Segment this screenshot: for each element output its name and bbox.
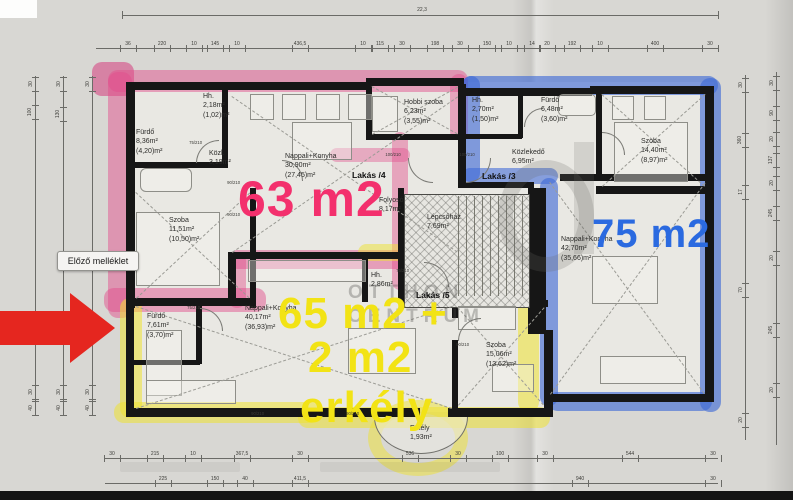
vertical-dimension-tick: [60, 385, 67, 386]
top-dimension-tick: [539, 45, 540, 52]
red-arrow-annotation: [0, 311, 70, 345]
vertical-dimension: 100: [27, 108, 33, 116]
vertical-dimension: 30: [28, 81, 34, 87]
vertical-dimension-line: [35, 76, 36, 416]
door-size-label: 90/210: [251, 411, 264, 416]
room-label: Fürdő 7,61m² (3,70)m²: [147, 312, 173, 340]
bottom-dimension: 100: [496, 451, 504, 457]
vertical-dimension-tick: [32, 91, 39, 92]
vertical-dimension: 360: [737, 136, 743, 144]
bottom-dimension-tick: [553, 455, 554, 462]
vertical-dimension-tick: [773, 383, 780, 384]
vertical-dimension: 245: [768, 326, 774, 334]
vertical-dimension-tick: [773, 153, 780, 154]
area-label: erkély: [300, 386, 433, 430]
bottom-dimension-tick: [492, 455, 493, 462]
vertical-dimension-tick: [773, 146, 780, 147]
vertical-dimension: 245: [768, 209, 774, 217]
vertical-dimension: 20: [769, 387, 775, 393]
vertical-dimension-tick: [773, 206, 780, 207]
vertical-dimension-tick: [60, 399, 67, 400]
vertical-dimension-tick: [773, 397, 780, 398]
vertical-dimension: 137: [768, 156, 774, 164]
vertical-dimension-tick: [773, 323, 780, 324]
bottom-dimension: 940: [576, 476, 584, 482]
top-dimension-tick: [564, 45, 565, 52]
bottom-dimension: 40: [242, 476, 248, 482]
vertical-dimension-tick: [773, 90, 780, 91]
top-dimension-tick: [308, 45, 309, 52]
top-dimension-tick: [580, 45, 581, 52]
door-size-label: 75/210: [396, 268, 409, 273]
vertical-dimension-tick: [32, 105, 39, 106]
top-dimension-tick: [495, 45, 496, 52]
bottom-dimension-tick: [705, 455, 706, 462]
top-dimension-tick: [394, 45, 395, 52]
bottom-dimension-tick: [705, 480, 706, 487]
area-label: 2 m2: [308, 336, 412, 380]
top-dimension-tick: [207, 45, 208, 52]
top-dimension-tick: [202, 45, 203, 52]
bottom-dimension: 30: [455, 451, 461, 457]
vertical-dimension: 30: [85, 389, 91, 395]
vertical-dimension-tick: [89, 77, 96, 78]
bottom-dimension: 30: [542, 451, 548, 457]
bottom-dimension: 30: [297, 451, 303, 457]
top-dimension: 10: [360, 41, 366, 47]
vertical-dimension-tick: [773, 190, 780, 191]
vertical-dimension-tick: [742, 185, 749, 186]
vertical-dimension-tick: [742, 133, 749, 134]
previous-attachment-button[interactable]: Előző melléklet: [57, 251, 139, 271]
top-dimension: 150: [483, 41, 491, 47]
top-dimension: 30: [707, 41, 713, 47]
top-dimension-tick: [136, 45, 137, 52]
bottom-dimension: 30: [109, 451, 115, 457]
bottom-dimension-tick: [638, 455, 639, 462]
bottom-dimension-tick: [185, 455, 186, 462]
vertical-dimension: 40: [85, 405, 91, 411]
vertical-dimension: 30: [28, 389, 34, 395]
vertical-dimension-tick: [60, 401, 67, 402]
room-label: Fürdő 6,48m² (3,60)m²: [541, 96, 567, 124]
bottom-dimension-tick: [622, 455, 623, 462]
red-arrow-annotation-head: [70, 293, 115, 363]
vertical-dimension-tick: [773, 106, 780, 107]
floor-plan-photo: OTTHON CENTRUM Hh. 2,18m² (1,02)m²Fürdő …: [0, 0, 793, 500]
door-size-label: 90/210: [227, 180, 240, 185]
vertical-dimension-tick: [32, 399, 39, 400]
top-dimension-tick: [355, 45, 356, 52]
vertical-dimension-tick: [773, 167, 780, 168]
bottom-dimension-tick: [120, 455, 121, 462]
vertical-dimension: 90: [769, 110, 775, 116]
vertical-dimension-tick: [773, 220, 780, 221]
vertical-dimension: 30: [56, 81, 62, 87]
bottom-dimension-tick: [234, 455, 235, 462]
vertical-dimension: 30: [769, 80, 775, 86]
vertical-dimension-tick: [742, 199, 749, 200]
vertical-dimension-tick: [32, 385, 39, 386]
vertical-dimension-tick: [773, 176, 780, 177]
top-dimension-tick: [452, 45, 453, 52]
bottom-dimension: 150: [211, 476, 219, 482]
top-dimension-tick: [468, 45, 469, 52]
vertical-dimension: 30: [85, 81, 91, 87]
top-dimension-tick: [718, 45, 719, 52]
room-label: Szoba 14,40m² (8,97)m²: [641, 137, 667, 165]
top-dimension: 10: [597, 41, 603, 47]
top-dimension: 145: [211, 41, 219, 47]
vertical-dimension: 130: [55, 110, 61, 118]
top-dimension: 10: [506, 41, 512, 47]
vertical-dimension-tick: [89, 91, 96, 92]
bottom-dimension-tick: [721, 455, 722, 462]
top-dimension-tick: [555, 45, 556, 52]
bottom-dimension: 225: [159, 476, 167, 482]
door-size-label: 75/210: [189, 140, 202, 145]
vertical-dimension-tick: [742, 147, 749, 148]
room-label: Hh. 2,18m² (1,02)m²: [203, 92, 229, 120]
room-label: Szoba 15,06m² (13,62)m²: [486, 341, 516, 369]
bottom-dimension: 215: [151, 451, 159, 457]
top-dimension-tick: [702, 45, 703, 52]
bottom-dimension-tick: [163, 455, 164, 462]
vertical-dimension-tick: [32, 77, 39, 78]
top-dimension-tick: [592, 45, 593, 52]
top-dimension-tick: [524, 45, 525, 52]
top-dimension-tick: [647, 45, 648, 52]
door-size-label: 90/210: [346, 411, 359, 416]
bottom-dimension: 411,5: [294, 476, 306, 482]
room-label: Fürdő 8,36m² (4,20)m²: [136, 128, 162, 156]
generated-annotations: Hh. 2,18m² (1,02)m²Fürdő 8,36m² (4,20)m²…: [0, 0, 793, 500]
top-dimension-tick: [170, 45, 171, 52]
bottom-dimension-tick: [450, 455, 451, 462]
bottom-black-bar: [0, 491, 793, 500]
room-label: Lépcsőház 7,69m²: [427, 213, 461, 232]
door-size-label: 100/210: [459, 152, 474, 157]
vertical-dimension-tick: [773, 265, 780, 266]
area-label: 63 m2: [238, 174, 385, 224]
vertical-dimension: 30: [56, 389, 62, 395]
vertical-dimension: 30: [738, 82, 744, 88]
bottom-dimension: 367,5: [236, 451, 249, 457]
vertical-dimension: 20: [738, 417, 744, 423]
top-dimension-tick: [154, 45, 155, 52]
door-size-label: 90/210: [227, 212, 240, 217]
room-label: Hh. 2,86m²: [371, 271, 393, 290]
bottom-dimension-tick: [292, 480, 293, 487]
vertical-dimension-tick: [742, 413, 749, 414]
top-dimension: 30: [399, 41, 405, 47]
corner-white-box: [0, 0, 37, 18]
bottom-dimension-tick: [466, 455, 467, 462]
vertical-dimension-tick: [773, 132, 780, 133]
bottom-dimension-tick: [201, 455, 202, 462]
bottom-dimension: 30: [710, 451, 716, 457]
top-dimension: 10: [191, 41, 197, 47]
bottom-dimension-tick: [147, 455, 148, 462]
vertical-dimension: 40: [28, 405, 34, 411]
top-dimension: 36: [125, 41, 131, 47]
top-dimension-tick: [245, 45, 246, 52]
bottom-dimension-tick: [572, 480, 573, 487]
top-dimension-tick: [540, 45, 541, 52]
bottom-dimension-tick: [308, 480, 309, 487]
vertical-dimension-line: [745, 75, 746, 440]
vertical-dimension: 40: [56, 405, 62, 411]
top-dimension-tick: [608, 45, 609, 52]
vertical-dimension-tick: [89, 401, 96, 402]
vertical-dimension-tick: [89, 385, 96, 386]
door-size-label: 90/210: [456, 342, 469, 347]
bottom-dimension-tick: [223, 480, 224, 487]
top-dimension-tick: [372, 45, 373, 52]
vertical-dimension-line: [776, 72, 777, 445]
room-label: Hh. 2,70m² (1,50)m²: [472, 96, 498, 124]
vertical-dimension-tick: [742, 427, 749, 428]
vertical-dimension-tick: [742, 283, 749, 284]
vertical-dimension: 17: [738, 189, 744, 195]
bottom-dimension-tick: [537, 455, 538, 462]
area-label: 75 m2: [592, 214, 710, 254]
top-dimension-tick: [186, 45, 187, 52]
vertical-dimension-tick: [32, 119, 39, 120]
top-dimension: 220: [158, 41, 166, 47]
vertical-dimension-tick: [60, 121, 67, 122]
vertical-dimension-tick: [32, 401, 39, 402]
top-dimension: 20: [544, 41, 550, 47]
bottom-dimension-tick: [171, 480, 172, 487]
top-dimension-tick: [443, 45, 444, 52]
top-dimension-tick: [501, 45, 502, 52]
vertical-dimension-tick: [60, 77, 67, 78]
bottom-dimension: 10: [190, 451, 196, 457]
vertical-dimension-line: [92, 76, 93, 416]
vertical-dimension-tick: [742, 78, 749, 79]
bottom-dimension-tick: [253, 480, 254, 487]
top-dimension: 14: [529, 41, 535, 47]
vertical-dimension-tick: [60, 91, 67, 92]
vertical-dimension-line: [63, 76, 64, 416]
vertical-dimension-tick: [773, 337, 780, 338]
top-dimension-tick: [292, 45, 293, 52]
room-label: Szoba 11,51m² (10,50)m²: [169, 216, 199, 244]
bottom-dimension-tick: [155, 480, 156, 487]
vertical-dimension-tick: [60, 107, 67, 108]
top-dimension: 192: [568, 41, 576, 47]
bottom-dimension: 536: [406, 451, 414, 457]
top-dimension: 115: [376, 41, 384, 47]
vertical-dimension-tick: [89, 399, 96, 400]
vertical-dimension-tick: [773, 120, 780, 121]
top-dimension: 30: [457, 41, 463, 47]
total-dimension: 22,3: [417, 7, 427, 13]
bottom-dimension-tick: [588, 480, 589, 487]
vertical-dimension-tick: [32, 415, 39, 416]
bottom-dimension-tick: [418, 455, 419, 462]
top-dimension: 400: [651, 41, 659, 47]
top-dimension: 198: [431, 41, 439, 47]
vertical-dimension: 20: [769, 136, 775, 142]
top-dimension-tick: [479, 45, 480, 52]
top-dimension-tick: [427, 45, 428, 52]
vertical-dimension: 70: [738, 287, 744, 293]
bottom-dimension-tick: [292, 455, 293, 462]
bottom-dimension-tick: [508, 455, 509, 462]
vertical-dimension-tick: [89, 415, 96, 416]
vertical-dimension-tick: [742, 92, 749, 93]
vertical-dimension-tick: [773, 251, 780, 252]
top-dimension-tick: [410, 45, 411, 52]
top-dimension-tick: [517, 45, 518, 52]
top-dimension-tick: [120, 45, 121, 52]
room-label: Hobbi szoba 6,23m² (3,55)m²: [404, 98, 443, 126]
vertical-dimension-tick: [773, 76, 780, 77]
apartment-tag: Lakás /3: [482, 171, 516, 181]
bottom-dimension-tick: [721, 480, 722, 487]
door-size-label: 100/210: [385, 152, 400, 157]
top-dimension-tick: [229, 45, 230, 52]
bottom-dimension-tick: [308, 455, 309, 462]
bottom-dimension-tick: [237, 480, 238, 487]
bottom-dimension-tick: [207, 480, 208, 487]
bottom-dimension: 30: [710, 476, 716, 482]
vertical-dimension-tick: [742, 297, 749, 298]
vertical-dimension-tick: [60, 415, 67, 416]
room-label: Közl. 3,19m²: [209, 149, 231, 168]
bottom-dimension-tick: [402, 455, 403, 462]
top-dimension-tick: [388, 45, 389, 52]
bottom-dimension: 544: [626, 451, 634, 457]
bottom-dimension-tick: [250, 455, 251, 462]
door-size-label: 75/210: [187, 305, 200, 310]
top-dimension: 436,5: [294, 41, 307, 47]
vertical-dimension: 20: [769, 180, 775, 186]
bottom-dimension-tick: [104, 455, 105, 462]
top-dimension: 10: [234, 41, 240, 47]
vertical-dimension: 20: [769, 255, 775, 261]
top-dimension-tick: [663, 45, 664, 52]
room-label: Közlekedő 6,95m²: [512, 148, 545, 167]
top-dimension-tick: [223, 45, 224, 52]
area-label: 65 m2 +: [278, 292, 448, 336]
